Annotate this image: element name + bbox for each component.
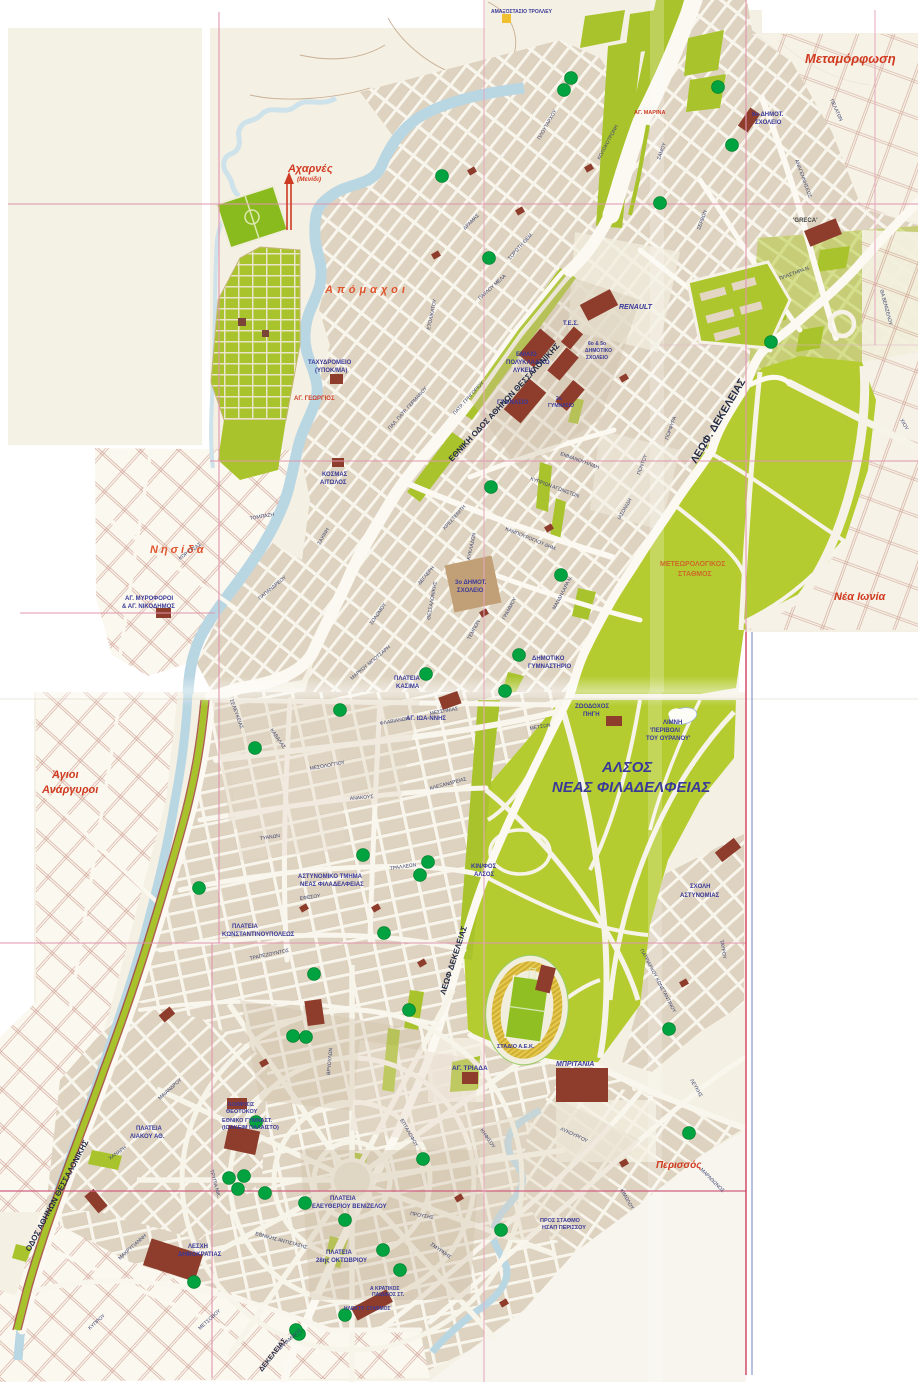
svg-text:ΝΕΑΣ ΦΙΛΑΔΕΛΦΕΙΑΣ: ΝΕΑΣ ΦΙΛΑΔΕΛΦΕΙΑΣ xyxy=(300,882,364,888)
svg-text:ΚΙΝ/ΦΟΣ: ΚΙΝ/ΦΟΣ xyxy=(471,864,497,870)
svg-text:ΑΓ. ΜΥΡΟΦΟΡΟΙ: ΑΓ. ΜΥΡΟΦΟΡΟΙ xyxy=(125,596,174,602)
svg-text:'ΠΕΡΙΒΟΛΙ: 'ΠΕΡΙΒΟΛΙ xyxy=(650,728,680,734)
svg-text:Αχαρνές: Αχαρνές xyxy=(287,163,333,175)
svg-text:ΑΓ. ΜΑΡΙΝΑ: ΑΓ. ΜΑΡΙΝΑ xyxy=(634,110,665,116)
svg-text:ΕΛΕΥΘΕΡΙΟΥ ΒΕΝΙΖΕΛΟΥ: ΕΛΕΥΘΕΡΙΟΥ ΒΕΝΙΖΕΛΟΥ xyxy=(312,1204,387,1210)
svg-text:& ΑΓ. ΝΙΚΟΔΗΜΟΣ: & ΑΓ. ΝΙΚΟΔΗΜΟΣ xyxy=(122,604,175,610)
svg-text:ΑΓ. ΙΩΑ-ΝΝΗΣ: ΑΓ. ΙΩΑ-ΝΝΗΣ xyxy=(406,716,446,722)
svg-text:ΛΙΜΝΗ: ΛΙΜΝΗ xyxy=(663,720,682,726)
svg-text:Περισσός: Περισσός xyxy=(656,1160,702,1171)
svg-text:ΑΣΤΥΝΟΜΙΚΟ ΤΜΗΜΑ: ΑΣΤΥΝΟΜΙΚΟ ΤΜΗΜΑ xyxy=(298,874,363,880)
svg-text:ΠΛΑΤΕΙΑ: ΠΛΑΤΕΙΑ xyxy=(136,1126,163,1132)
svg-text:ΣΧΟΛΕΙΟ: ΣΧΟΛΕΙΟ xyxy=(457,588,484,594)
svg-text:ΚΟΙΜΗΣΙΣ: ΚΟΙΜΗΣΙΣ xyxy=(228,1102,255,1108)
svg-text:Απόμαχοι: Απόμαχοι xyxy=(324,284,409,296)
svg-text:ΗΛΕΚΤΡ. ΣΤΑΘΜΟΣ: ΗΛΕΚΤΡ. ΣΤΑΘΜΟΣ xyxy=(344,1306,391,1312)
svg-text:ΔΗΜΟΤΙΚΟ: ΔΗΜΟΤΙΚΟ xyxy=(532,656,565,662)
svg-text:Ανάργυροι: Ανάργυροι xyxy=(41,784,98,796)
svg-text:ΣΧΟΛΕΙΟ: ΣΧΟΛΕΙΟ xyxy=(755,120,782,126)
svg-text:2ο: 2ο xyxy=(556,396,562,402)
svg-text:Άγιοι: Άγιοι xyxy=(51,769,79,781)
svg-text:ΣΧΟΛΕΙΟ: ΣΧΟΛΕΙΟ xyxy=(586,355,608,361)
svg-text:'GRECA': 'GRECA' xyxy=(793,218,818,224)
svg-text:ΛΙΑΚΟΥ ΑΘ.: ΛΙΑΚΟΥ ΑΘ. xyxy=(130,1134,165,1140)
svg-text:ΚΟΣΜΑΣ: ΚΟΣΜΑΣ xyxy=(322,472,348,478)
svg-text:6ο & 5ο: 6ο & 5ο xyxy=(588,341,606,347)
svg-text:Τ.Ε.Σ.: Τ.Ε.Σ. xyxy=(563,321,579,327)
svg-text:ΑΓ. ΤΡΙΑΔΑ: ΑΓ. ΤΡΙΑΔΑ xyxy=(452,1065,488,1072)
svg-text:ΑΜΑΞΟΣΤΑΣΙΟ ΤΡΟΛΛΕΥ: ΑΜΑΞΟΣΤΑΣΙΟ ΤΡΟΛΛΕΥ xyxy=(491,9,553,15)
svg-text:ΤΟΥ ΟΥΡΑΝΟΥ': ΤΟΥ ΟΥΡΑΝΟΥ' xyxy=(646,736,691,742)
svg-text:ΠΡΟΣ ΣΤΑΘΜΟ: ΠΡΟΣ ΣΤΑΘΜΟ xyxy=(540,1218,581,1224)
svg-text:ΣΤΑΘΜΟΣ: ΣΤΑΘΜΟΣ xyxy=(678,571,712,578)
svg-text:(Μενίδι): (Μενίδι) xyxy=(297,176,321,183)
svg-text:ΠΑΙΔΙΚΟΣ ΣΤ.: ΠΑΙΔΙΚΟΣ ΣΤ. xyxy=(372,1292,405,1298)
svg-text:RENAULT: RENAULT xyxy=(619,304,653,311)
svg-text:ΕΘΝΙΚΟ ΓΥΜΝΑΣΤ.: ΕΘΝΙΚΟ ΓΥΜΝΑΣΤ. xyxy=(222,1118,273,1124)
svg-text:ΓΥΜΝΑΣΤΗΡΙΟ: ΓΥΜΝΑΣΤΗΡΙΟ xyxy=(528,664,572,670)
svg-text:28ης ΟΚΤΩΒΡΙΟΥ: 28ης ΟΚΤΩΒΡΙΟΥ xyxy=(316,1258,367,1264)
svg-text:ΗΣΑΠ ΠΕΡΙΣΣΟΥ: ΗΣΑΠ ΠΕΡΙΣΣΟΥ xyxy=(542,1225,586,1231)
svg-text:ΜΕΤΕΩΡΟΛΟΓΙΚΟΣ: ΜΕΤΕΩΡΟΛΟΓΙΚΟΣ xyxy=(660,561,725,568)
svg-text:ΘΕΟΤΟΚΟΥ: ΘΕΟΤΟΚΟΥ xyxy=(226,1109,258,1115)
svg-text:(ΥΠΟΚ/ΜΑ): (ΥΠΟΚ/ΜΑ) xyxy=(315,368,347,374)
svg-text:ΑΙΤΩΛΟΣ: ΑΙΤΩΛΟΣ xyxy=(320,480,347,486)
svg-text:ΠΛΑΤΕΙΑ: ΠΛΑΤΕΙΑ xyxy=(232,924,259,930)
svg-text:ΣΤΑΔΙΟ Α.Ε.Κ.: ΣΤΑΔΙΟ Α.Ε.Κ. xyxy=(497,1044,535,1050)
svg-text:ΝΕΑΣ ΦΙΛΑΔΕΛΦΕΙΑΣ: ΝΕΑΣ ΦΙΛΑΔΕΛΦΕΙΑΣ xyxy=(552,779,711,796)
svg-text:3ο ΔΗΜΟΤ.: 3ο ΔΗΜΟΤ. xyxy=(455,580,487,586)
svg-text:ΠΗΓΗ: ΠΗΓΗ xyxy=(583,712,600,718)
svg-text:ΠΛΑΤΕΙΑ: ΠΛΑΤΕΙΑ xyxy=(326,1250,353,1256)
svg-text:ΤΑΧΥΔΡΟΜΕΙΟ: ΤΑΧΥΔΡΟΜΕΙΟ xyxy=(308,360,352,366)
svg-text:ΜΠΡΙΤΑΝΙΑ: ΜΠΡΙΤΑΝΙΑ xyxy=(556,1061,594,1068)
svg-text:ΠΛΑΤΕΙΑ: ΠΛΑΤΕΙΑ xyxy=(394,676,421,682)
svg-text:(ΙΩΑΚΕΙΜ ΠΑΛΑΙΣΤΟ): (ΙΩΑΚΕΙΜ ΠΑΛΑΙΣΤΟ) xyxy=(222,1125,279,1131)
svg-text:ΠΛΑΤΕΙΑ: ΠΛΑΤΕΙΑ xyxy=(330,1196,357,1202)
svg-text:ΛΕΣΧΗ: ΛΕΣΧΗ xyxy=(188,1244,208,1250)
svg-text:ΓΥΜΝΑΣΙΟ: ΓΥΜΝΑΣΙΟ xyxy=(548,403,574,409)
svg-text:ΔΗΜΟΚΡΑΤΙΑΣ: ΔΗΜΟΚΡΑΤΙΑΣ xyxy=(178,1252,222,1258)
svg-text:Νέα Ιωνία: Νέα Ιωνία xyxy=(834,591,886,603)
svg-text:ΚΩΝΣΤΑΝΤΙΝΟΥΠΟΛΕΩΣ: ΚΩΝΣΤΑΝΤΙΝΟΥΠΟΛΕΩΣ xyxy=(222,932,295,938)
svg-text:ΣΧΟΛΗ: ΣΧΟΛΗ xyxy=(690,884,710,890)
svg-text:ΑΓ. ΓΕΩΡΓΙΟΣ: ΑΓ. ΓΕΩΡΓΙΟΣ xyxy=(294,396,335,402)
svg-text:ΚΑΣΙΜΑ: ΚΑΣΙΜΑ xyxy=(396,684,420,690)
svg-text:ΑΛΣΟΣ: ΑΛΣΟΣ xyxy=(601,759,653,776)
svg-text:6ο ΔΗΜΟΤ.: 6ο ΔΗΜΟΤ. xyxy=(752,112,784,118)
svg-text:Μεταμόρφωση: Μεταμόρφωση xyxy=(805,51,896,66)
svg-text:ΑΣΤΥΝΟΜΙΑΣ: ΑΣΤΥΝΟΜΙΑΣ xyxy=(680,893,720,899)
svg-text:ΕΝΙΑΙΟ: ΕΝΙΑΙΟ xyxy=(516,352,537,358)
svg-text:ΔΗΜΟΤΙΚΟ: ΔΗΜΟΤΙΚΟ xyxy=(585,348,612,354)
svg-text:ΖΩΟΔΟΧΟΣ: ΖΩΟΔΟΧΟΣ xyxy=(575,704,609,710)
svg-text:ΑΛΣΟΣ: ΑΛΣΟΣ xyxy=(474,872,495,878)
